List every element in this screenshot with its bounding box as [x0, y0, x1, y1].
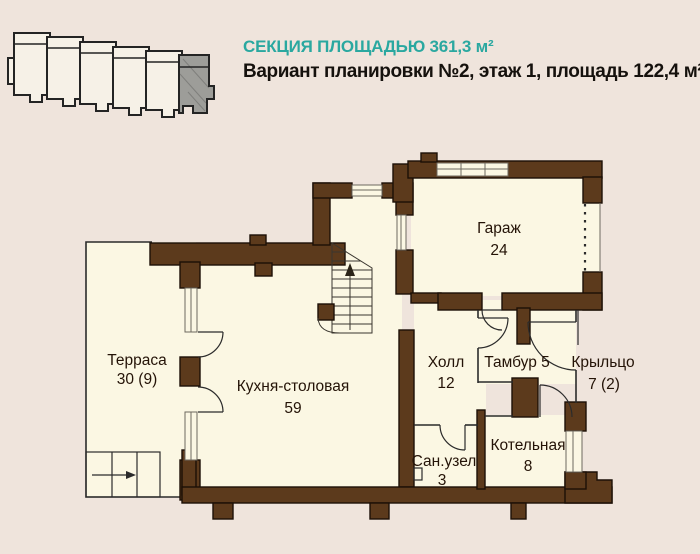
label-kitchen-area: 59 — [284, 400, 301, 417]
label-garage: Гараж — [477, 220, 521, 237]
window — [566, 431, 582, 472]
pier — [180, 357, 200, 386]
label-garage-area: 24 — [490, 242, 508, 259]
label-hall: Холл — [428, 354, 465, 371]
label-boiler-area: 8 — [524, 458, 533, 475]
stair-newel — [318, 304, 334, 320]
floor-plan: Терраса 30 (9) Кухня-столовая 59 Гараж 2… — [0, 0, 700, 554]
label-kitchen: Кухня-столовая — [237, 378, 350, 395]
pilaster — [370, 503, 389, 519]
pilaster — [421, 153, 437, 162]
label-boiler: Котельная — [490, 437, 565, 454]
label-porch-area: 7 (2) — [588, 376, 620, 393]
pilaster — [511, 503, 526, 519]
label-terrace: Терраса — [107, 352, 167, 369]
pilaster — [213, 503, 233, 519]
label-bathroom-area: 3 — [438, 472, 447, 489]
pilaster — [250, 235, 266, 245]
label-terrace-area: 30 (9) — [117, 371, 158, 388]
page: { "page": { "background": "#efe4dc" }, "… — [0, 0, 700, 554]
label-porch: Крыльцо — [571, 354, 634, 371]
pilaster — [255, 263, 272, 276]
label-tambour: Тамбур 5 — [484, 354, 550, 371]
label-hall-area: 12 — [437, 375, 454, 392]
label-bathroom: Сан.узел — [412, 453, 477, 470]
pier — [512, 378, 538, 417]
